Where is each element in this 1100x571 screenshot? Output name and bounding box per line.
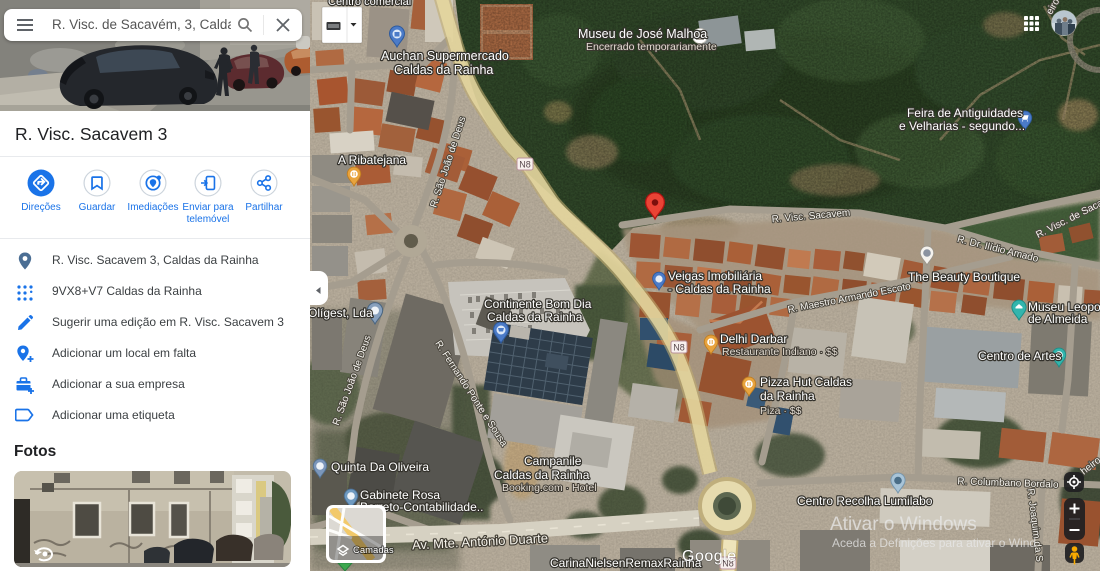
svg-text:Centro Recolha Lumilabo: Centro Recolha Lumilabo	[797, 494, 933, 508]
svg-text:Campanile: Campanile	[524, 454, 582, 468]
svg-text:Caldas da Rainha: Caldas da Rainha	[487, 310, 583, 324]
svg-text:- Caldas da Rainha: - Caldas da Rainha	[668, 282, 771, 296]
svg-text:A Ribatejana: A Ribatejana	[338, 153, 406, 167]
svg-text:Encerrado temporariamente: Encerrado temporariamente	[586, 41, 717, 53]
svg-text:Caldas da Rainha: Caldas da Rainha	[494, 468, 590, 482]
svg-text:Piza · $$: Piza · $$	[760, 405, 802, 417]
svg-text:Caldas da Rainha: Caldas da Rainha	[394, 63, 493, 77]
svg-text:de Almeida: de Almeida	[1028, 312, 1088, 326]
svg-text:Auchan Supermercado: Auchan Supermercado	[381, 49, 509, 63]
svg-text:The Beauty Boutique: The Beauty Boutique	[908, 270, 1020, 284]
svg-text:Restaurante Indiano · $$: Restaurante Indiano · $$	[722, 346, 838, 358]
svg-text:Continente Bom Dia: Continente Bom Dia	[484, 297, 592, 311]
svg-text:N8: N8	[673, 343, 685, 353]
svg-text:Feira de Antiguidades: Feira de Antiguidades	[907, 106, 1023, 120]
svg-text:Centro de Artes: Centro de Artes	[978, 349, 1061, 363]
svg-text:Olígest, Lda: Olígest, Lda	[310, 306, 373, 320]
svg-text:N8: N8	[519, 160, 531, 170]
svg-text:e Velharias - segundo...: e Velharias - segundo...	[899, 119, 1025, 133]
svg-text:Aceda a Definições para ativar: Aceda a Definições para ativar o Wind	[832, 536, 1036, 550]
svg-text:Museu de José Malhoa: Museu de José Malhoa	[578, 27, 707, 41]
svg-text:Quinta Da Oliveira: Quinta Da Oliveira	[331, 460, 429, 474]
svg-text:Ativar o Windows: Ativar o Windows	[830, 514, 977, 535]
svg-text:CarinaNielsenRemaxRainha: CarinaNielsenRemaxRainha	[550, 556, 702, 570]
svg-text:da Rainha: da Rainha	[760, 389, 815, 403]
svg-text:Veigas Imobiliária: Veigas Imobiliária	[668, 269, 762, 283]
svg-text:Camadas: Camadas	[353, 545, 394, 556]
svg-text:Booking.com · Hotel: Booking.com · Hotel	[502, 482, 597, 494]
svg-text:Delhi Darbar: Delhi Darbar	[720, 332, 787, 346]
svg-text:Google: Google	[682, 548, 737, 565]
svg-text:Pizza Hut Caldas: Pizza Hut Caldas	[760, 375, 852, 389]
